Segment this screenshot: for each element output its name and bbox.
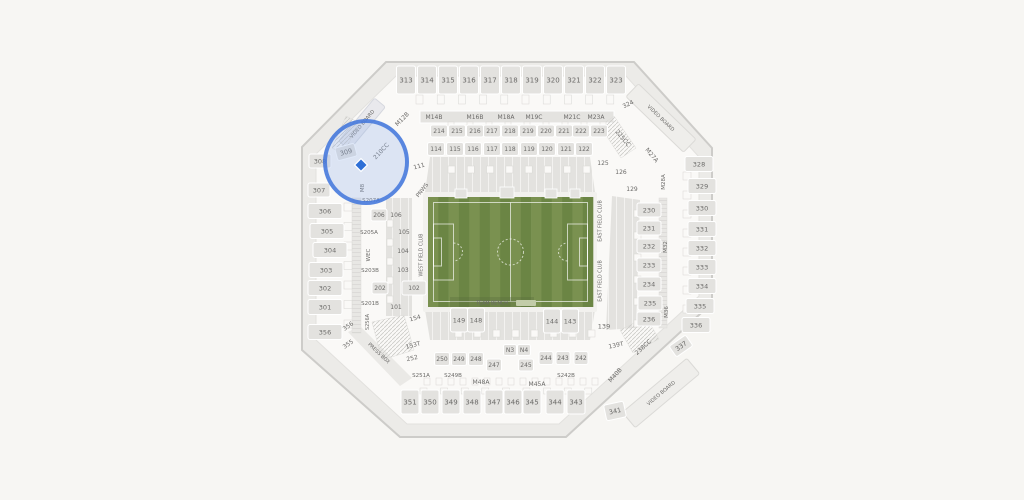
vomitory-mark [607,95,614,104]
section-233[interactable]: 233 [637,258,661,272]
section-label: 331 [696,225,708,233]
section-label: 321 [567,76,580,84]
section-label: 343 [569,398,582,406]
section-330[interactable]: 330 [688,201,716,216]
section-321[interactable]: 321 [565,66,584,94]
vomitory-mark [520,378,526,385]
section-label: 245 [520,362,532,369]
section-247[interactable]: 247 [487,359,502,371]
vomitory-mark [588,330,595,337]
section-236[interactable]: 236 [637,312,661,326]
section-label: 328 [693,160,705,168]
vomitory-mark [416,95,423,104]
section-351[interactable]: 351 [401,390,419,414]
vomitory-mark [436,378,442,385]
section-label: 317 [483,76,496,84]
section-m19c[interactable]: M19C [525,114,542,121]
section-label: EAST FIELD CLUB [598,260,604,302]
mezzanine-strip [420,111,614,123]
section-label: N3 [506,347,514,354]
section-232[interactable]: 232 [637,239,661,253]
section-328[interactable]: 328 [685,157,713,172]
vomitory-mark [525,166,532,173]
section-label: M48A [473,379,491,386]
vomitory-mark [568,378,574,385]
section-m32[interactable]: M32 [663,241,669,253]
section-label: M23A [588,114,606,121]
section-305[interactable]: 305 [310,224,344,239]
section-label: 333 [696,263,708,271]
section-label: 320 [546,76,559,84]
section-label: 218 [504,128,516,135]
section-label: 126 [615,169,627,176]
section-label: 349 [444,398,457,406]
section-m23a[interactable]: M23A [588,114,606,121]
vomitory-mark [448,378,454,385]
section-336[interactable]: 336 [682,318,710,333]
stadium-map-svg: 313314315316317318319320321322323324M12B… [0,0,1024,500]
section-label: 221 [558,128,570,135]
vomitory-mark [387,220,393,227]
vomitory-mark [556,378,562,385]
section-label: EAST FIELD CLUB [598,200,604,242]
section-label: 305 [321,227,333,235]
section-label: 316 [462,76,476,84]
section-306[interactable]: 306 [308,204,342,219]
section-label: 306 [319,207,331,215]
section-345[interactable]: 345 [523,390,541,414]
section-label: 319 [525,76,538,84]
section-label: 351 [403,398,416,406]
section-320[interactable]: 320 [544,66,563,94]
vomitory-mark [480,95,487,104]
vomitory-mark [387,239,393,246]
vomitory-mark [437,95,444,104]
section-n4[interactable]: N4 [518,345,531,356]
section-331[interactable]: 331 [688,222,716,237]
vomitory-mark [344,262,352,270]
section-317[interactable]: 317 [481,66,500,94]
section-label: 102 [408,285,420,292]
vomitory-mark [387,296,393,303]
section-label: 250 [436,356,448,363]
section-242[interactable]: 242 [574,352,588,365]
section-label: 214 [433,128,445,135]
section-322[interactable]: 322 [586,66,605,94]
section-label: 244 [540,355,552,362]
section-120[interactable]: 120 [539,143,556,156]
section-label: TEAM BENCH [475,301,508,307]
section-label: 121 [560,146,572,153]
section-label: 219 [522,128,534,135]
section-323[interactable]: 323 [607,66,626,94]
vomitory-mark [460,378,466,385]
vomitory-mark [583,166,590,173]
vomitory-mark [580,378,586,385]
section-label: 242 [575,355,587,362]
section-s201b[interactable]: S201B [361,301,379,307]
section-label: 122 [578,146,590,153]
section-label: 118 [504,146,516,153]
section-label: 144 [546,317,558,325]
section-label: 235 [644,299,656,307]
section-label: N4 [520,347,528,354]
section-label: 249 [453,356,465,363]
section-m48a[interactable]: M48A [473,379,491,386]
section-234[interactable]: 234 [637,277,661,291]
section-label: 117 [486,146,498,153]
section-341[interactable]: 341 [604,401,627,421]
section-label: S201B [361,301,379,307]
vomitory-mark [344,301,352,309]
section-m16b[interactable]: M16B [467,114,484,121]
section-label: 345 [525,398,538,406]
section-243[interactable]: 243 [556,352,570,365]
vomitory-mark [545,166,552,173]
vomitory-mark [564,95,571,104]
section-label: 243 [557,355,569,362]
section-label: 236 [643,315,655,323]
section-label: 215 [451,128,463,135]
section-label: 301 [319,303,331,311]
section-n3[interactable]: N3 [504,345,517,356]
section-117[interactable]: 117 [484,143,501,156]
section-label: 139 [598,322,610,330]
section-249[interactable]: 249 [452,353,467,366]
section-235[interactable]: 235 [638,296,662,310]
section-label: 115 [449,146,461,153]
vomitory-mark [585,388,592,394]
section-302[interactable]: 302 [308,281,342,296]
section-label: 346 [506,398,520,406]
section-team-bench: TEAM BENCH [475,301,508,307]
section-245[interactable]: 245 [519,359,534,371]
section-label: 323 [609,76,622,84]
section-101[interactable]: 101 [390,304,402,311]
section-label: 330 [696,204,708,212]
vomitory-mark [387,258,393,265]
section-304[interactable]: 304 [313,243,347,258]
section-label: 217 [486,128,498,135]
section-115[interactable]: 115 [447,143,464,156]
section-143[interactable]: 143 [562,309,579,333]
section-303[interactable]: 303 [309,263,343,278]
section-label: 313 [399,76,412,84]
section-label: M32 [663,241,669,253]
section-217[interactable]: 217 [484,125,501,137]
section-label: 103 [397,267,409,274]
section-118[interactable]: 118 [502,143,519,156]
section-m14b[interactable]: M14B [426,114,443,121]
section-347[interactable]: 347 [485,390,503,414]
section-148[interactable]: 148 [468,308,485,332]
section-east-field-club: EAST FIELD CLUB [598,200,604,242]
zoom-highlight-tint [327,123,405,201]
section-label: 101 [390,304,402,311]
section-335[interactable]: 335 [686,299,714,314]
section-label: 348 [465,398,478,406]
section-114[interactable]: 114 [428,143,445,156]
field-stripe [552,197,563,307]
section-label: 223 [593,128,605,135]
section-label: 220 [540,128,552,135]
section-label: S251A [412,373,430,379]
section-label: 248 [470,356,482,363]
section-wec[interactable]: WEC [366,248,372,261]
section-m21c[interactable]: M21C [563,114,580,121]
section-label: M36 [664,306,670,318]
section-102[interactable]: 102 [402,281,426,295]
section-315[interactable]: 315 [439,66,458,94]
section-label: 336 [690,321,702,329]
section-label: 125 [597,160,609,167]
section-label: 335 [694,302,706,310]
vomitory-mark [467,166,474,173]
field-stripe [438,197,449,307]
section-139[interactable]: 139 [598,322,610,330]
section-label: 222 [575,128,587,135]
section-label: 344 [548,398,562,406]
vomitory-mark [458,95,465,104]
section-m18a[interactable]: M18A [498,114,516,121]
section-label: M28A [661,174,667,190]
section-216[interactable]: 216 [467,125,484,137]
section-label: M45A [529,381,547,388]
section-label: 149 [453,316,465,324]
section-label: S256A [365,313,371,330]
section-220[interactable]: 220 [538,125,555,137]
section-label: 322 [588,76,601,84]
section-label: 314 [420,76,434,84]
section-214[interactable]: 214 [431,125,448,137]
section-149[interactable]: 149 [451,308,468,332]
vomitory-mark [522,95,529,104]
section-219[interactable]: 219 [520,125,537,137]
section-label: 230 [643,206,655,214]
section-121[interactable]: 121 [558,143,575,156]
section-label: 148 [470,316,482,324]
section-m28a[interactable]: M28A [661,174,667,190]
section-334[interactable]: 334 [688,279,716,294]
section-label: 114 [430,146,442,153]
section-label: WEST FIELD CLUB [419,234,425,277]
section-230[interactable]: 230 [637,203,661,217]
section-222[interactable]: 222 [573,125,590,137]
section-label: M14B [426,114,443,121]
section-west-field-club: WEST FIELD CLUB [419,234,425,277]
field-stripe [459,197,470,307]
section-label: 234 [643,280,655,288]
section-356[interactable]: 356 [308,325,342,340]
section-label: 315 [441,76,454,84]
section-label: M21C [563,114,580,121]
vomitory-mark [493,330,500,337]
section-343[interactable]: 343 [567,390,585,414]
section-307[interactable]: 307 [308,183,330,197]
section-s249b[interactable]: S249B [444,373,462,379]
section-label: M16B [467,114,484,121]
section-label: 318 [504,76,517,84]
section-label: 104 [397,248,409,255]
section-206[interactable]: 206 [371,209,387,221]
field-stripe [480,197,491,307]
field-stripe [572,197,583,307]
section-label: 303 [320,266,332,274]
section-125[interactable]: 125 [597,160,609,167]
seat-map-canvas[interactable]: 313314315316317318319320321322323324M12B… [0,0,1024,500]
section-126[interactable]: 126 [615,169,627,176]
section-119[interactable]: 119 [521,143,538,156]
field-stripe [490,197,501,307]
vomitory-mark [448,166,455,173]
section-label: 231 [643,224,655,232]
section-label: M18A [498,114,516,121]
field-stripe [531,197,542,307]
field-stripe [541,197,552,307]
section-348[interactable]: 348 [463,390,481,414]
section-label: S249B [444,373,462,379]
section-103[interactable]: 103 [397,267,409,274]
section-105[interactable]: 105 [398,229,410,236]
section-label: 347 [487,398,500,406]
field-stripe [511,197,522,307]
section-label: 105 [398,229,410,236]
section-label: 356 [319,328,331,336]
section-333[interactable]: 333 [688,260,716,275]
section-label: 120 [541,146,553,153]
section-221[interactable]: 221 [556,125,573,137]
section-label: S242B [557,373,575,379]
section-label: S203B [361,268,379,274]
section-s203b[interactable]: S203B [361,268,379,274]
vomitory-mark [424,378,430,385]
section-label: 307 [313,186,325,194]
section-319[interactable]: 319 [523,66,542,94]
section-label: 332 [696,244,708,252]
section-label: 233 [643,261,655,269]
section-s256a[interactable]: S256A [365,313,371,330]
west-stairs [352,198,361,333]
field [423,187,597,312]
vomitory-mark [487,166,494,173]
section-s205a[interactable]: S205A [360,230,378,236]
section-244[interactable]: 244 [539,352,553,365]
section-301[interactable]: 301 [308,300,342,315]
field-stripe [469,197,480,307]
vomitory-mark [586,95,593,104]
vomitory-mark [344,223,352,231]
section-344[interactable]: 344 [546,390,564,414]
section-label: 302 [319,284,331,292]
section-129[interactable]: 129 [626,186,638,193]
section-350[interactable]: 350 [421,390,439,414]
vomitory-mark [592,378,598,385]
section-label: 329 [696,182,708,190]
section-label: 247 [488,362,500,369]
section-label: 216 [469,128,481,135]
section-label: 106 [390,212,402,219]
section-346[interactable]: 346 [504,390,522,414]
section-m36[interactable]: M36 [664,306,670,318]
section-label: 143 [564,317,576,325]
vomitory-mark [496,378,502,385]
vomitory-mark [564,166,571,173]
section-label: 232 [643,242,655,250]
vomitory-mark [508,378,514,385]
section-label: 206 [373,212,385,219]
section-116[interactable]: 116 [465,143,482,156]
vomitory-mark [506,166,513,173]
section-106[interactable]: 106 [390,212,402,219]
vomitory-mark [344,203,352,211]
section-s251a[interactable]: S251A [412,373,430,379]
section-316[interactable]: 316 [460,66,479,94]
section-m45a[interactable]: M45A [529,381,547,388]
vomitory-mark [543,95,550,104]
section-label: 304 [324,246,336,254]
bench-pad [516,300,536,306]
section-144[interactable]: 144 [544,309,561,333]
section-label: S205A [360,230,378,236]
section-318[interactable]: 318 [502,66,521,94]
vomitory-mark [531,330,538,337]
section-218[interactable]: 218 [502,125,519,137]
section-label: 350 [423,398,436,406]
section-332[interactable]: 332 [688,241,716,256]
section-label: WEC [366,248,372,261]
section-label: 202 [374,285,386,292]
section-231[interactable]: 231 [637,221,661,235]
section-202[interactable]: 202 [372,282,388,294]
field-stripe [500,197,511,307]
section-313[interactable]: 313 [397,66,416,94]
section-122[interactable]: 122 [576,143,593,156]
section-label: 129 [626,186,638,193]
section-104[interactable]: 104 [397,248,409,255]
section-248[interactable]: 248 [469,353,484,366]
vomitory-mark [344,281,352,289]
section-east-field-club: EAST FIELD CLUB [598,260,604,302]
section-label: 334 [696,282,708,290]
vomitory-mark [501,95,508,104]
highlight-group [325,121,407,203]
section-s242b[interactable]: S242B [557,373,575,379]
section-label: M19C [525,114,542,121]
section-223[interactable]: 223 [591,125,608,137]
section-label: 116 [467,146,479,153]
section-label: 119 [523,146,535,153]
section-250[interactable]: 250 [435,353,450,366]
field-stripe [521,197,532,307]
section-329[interactable]: 329 [688,179,716,194]
section-349[interactable]: 349 [442,390,460,414]
vomitory-mark [512,330,519,337]
section-215[interactable]: 215 [449,125,466,137]
section-314[interactable]: 314 [418,66,437,94]
